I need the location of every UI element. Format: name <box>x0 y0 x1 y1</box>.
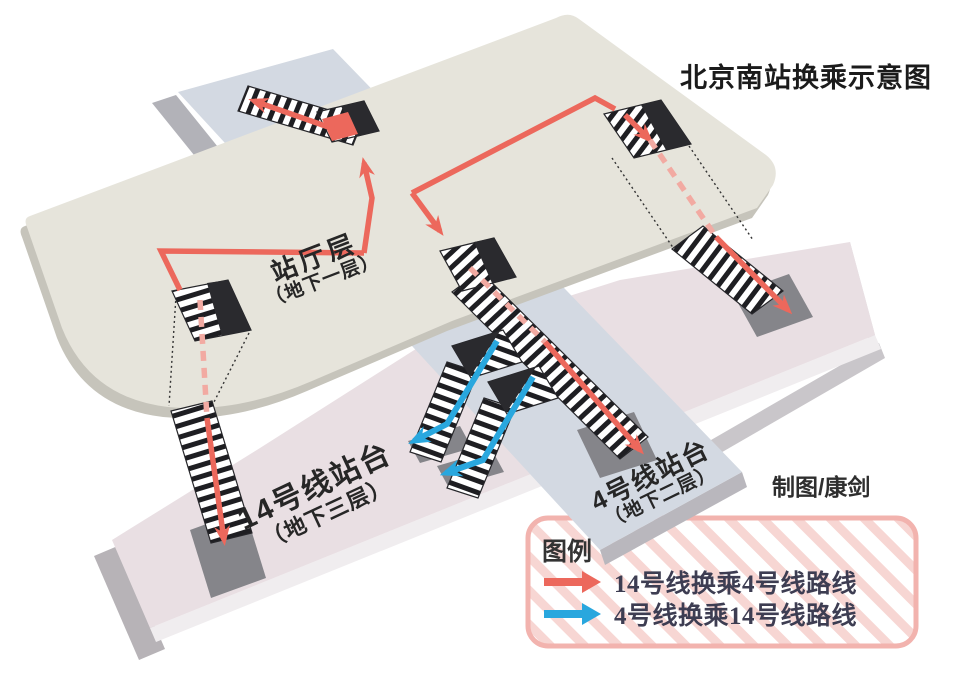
credit-line: 制图/康剑 <box>772 468 870 502</box>
arrow-bar <box>544 578 582 586</box>
page-title: 北京南站换乘示意图 <box>680 56 932 95</box>
arrow-tip <box>582 603 601 625</box>
arrow-bar <box>544 610 582 618</box>
blue-right-arrow-icon <box>544 603 601 625</box>
legend-item-red: 14号线换乘4号线路线 <box>544 564 857 600</box>
legend-item-label: 14号线换乘4号线路线 <box>614 564 857 600</box>
red-right-arrow-icon <box>544 571 601 593</box>
legend-item-blue: 4号线换乘14号线路线 <box>544 596 857 632</box>
legend-title: 图例 <box>542 532 592 568</box>
transfer-diagram: 北京南站换乘示意图 站厅层 （地下一层） 14号线站台 （地下三层） 4号线站台… <box>0 0 970 673</box>
arrow-tip <box>582 571 601 593</box>
legend-item-label: 4号线换乘14号线路线 <box>614 596 857 632</box>
